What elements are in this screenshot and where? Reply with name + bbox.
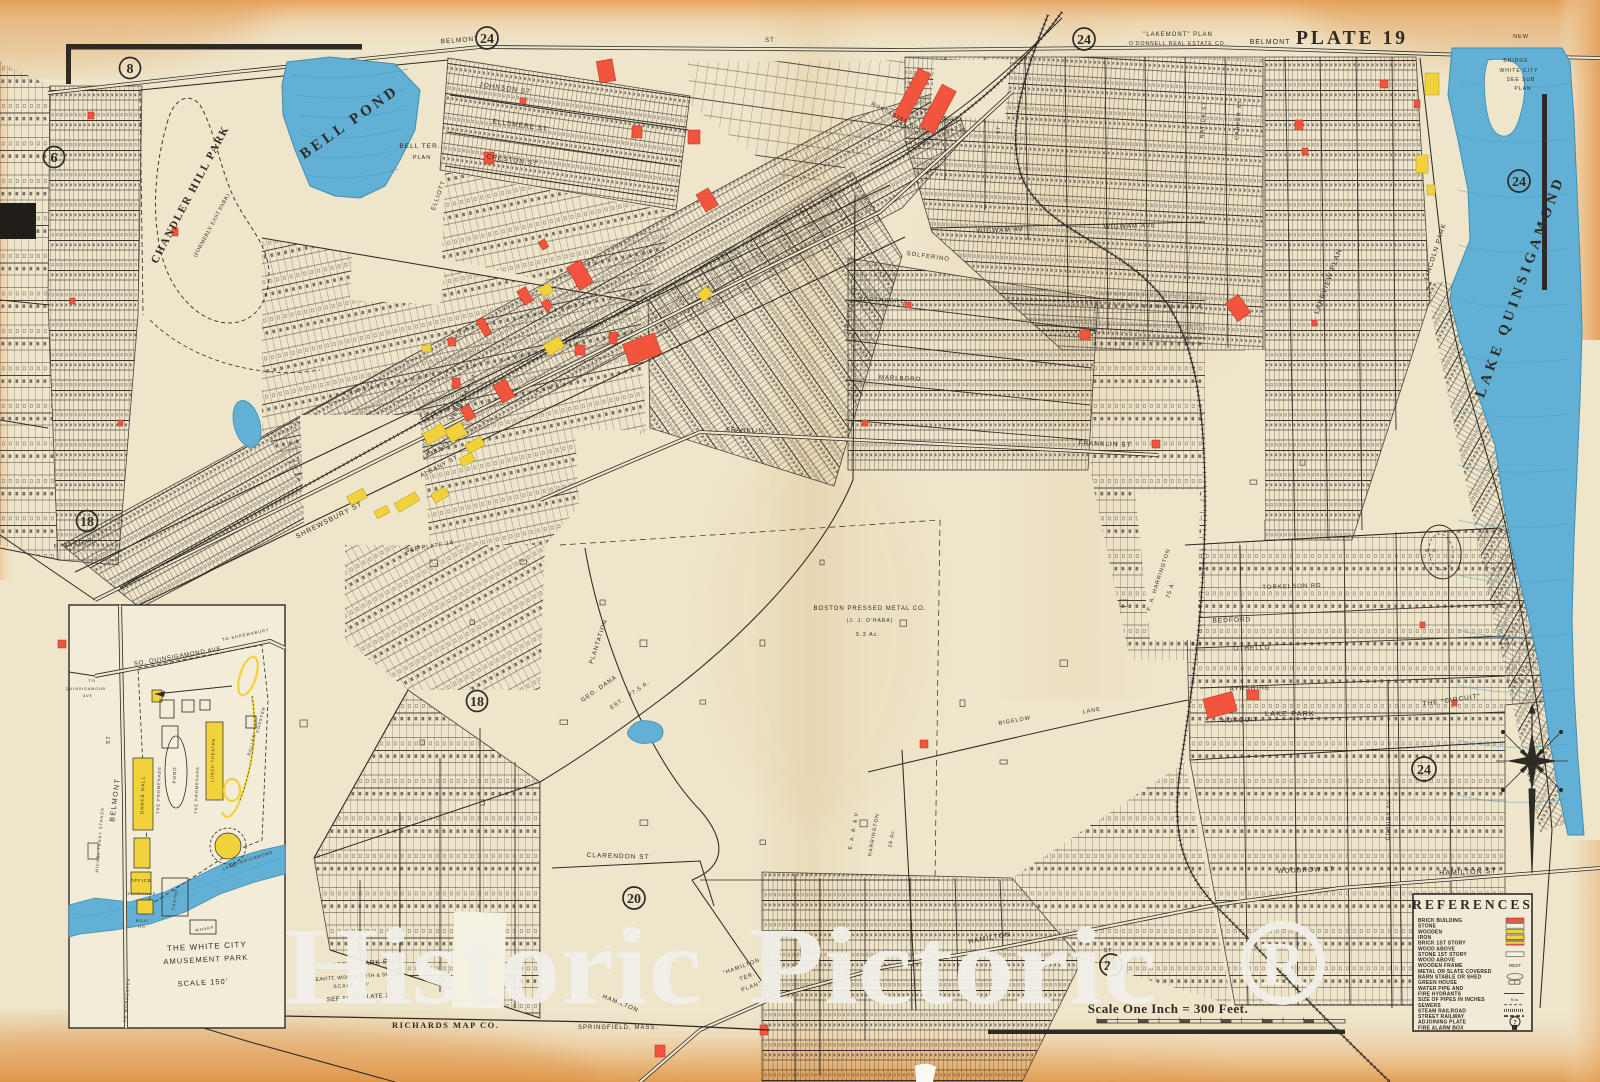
svg-text:NEW: NEW xyxy=(1513,34,1529,40)
svg-text:BEDFORD: BEDFORD xyxy=(1212,616,1251,624)
svg-text:Historic: Historic xyxy=(284,905,702,1027)
svg-text:ST: ST xyxy=(105,735,112,745)
svg-text:Pictoric: Pictoric xyxy=(749,905,1157,1027)
svg-text:ENTRANCE: ENTRANCE xyxy=(128,892,157,896)
svg-text:O’DONNELL REAL ESTATE CO.: O’DONNELL REAL ESTATE CO. xyxy=(1129,41,1227,47)
svg-text:W.O.: W.O. xyxy=(1425,548,1439,553)
svg-text:LAKE PARK: LAKE PARK xyxy=(1265,709,1315,718)
svg-text:BELMONT: BELMONT xyxy=(1250,39,1291,46)
svg-text:6 in.: 6 in. xyxy=(1511,997,1519,1002)
svg-text:PLATE 19: PLATE 19 xyxy=(1296,28,1408,49)
svg-text:REST: REST xyxy=(1509,963,1521,968)
svg-text:SEE SUB: SEE SUB xyxy=(1507,77,1536,83)
svg-text:PLAN: PLAN xyxy=(1514,86,1531,92)
svg-text:18: 18 xyxy=(470,695,484,710)
svg-text:OFFICE: OFFICE xyxy=(130,878,151,883)
svg-text:HO.: HO. xyxy=(138,925,148,929)
svg-text:QUINSIGAMOND: QUINSIGAMOND xyxy=(66,687,107,691)
svg-text:24: 24 xyxy=(1512,175,1526,190)
svg-text:24: 24 xyxy=(1417,763,1431,778)
svg-text:REFERENCES: REFERENCES xyxy=(1412,897,1533,912)
svg-text:BELL TER.: BELL TER. xyxy=(399,143,440,150)
svg-text:BRIDGE: BRIDGE xyxy=(1503,58,1528,64)
svg-text:OTHELLO: OTHELLO xyxy=(1233,644,1271,652)
svg-text:"LAKEMONT" PLAN: "LAKEMONT" PLAN xyxy=(1143,32,1213,38)
svg-text:ST: ST xyxy=(961,125,968,134)
svg-text:24: 24 xyxy=(480,32,494,47)
svg-text:R: R xyxy=(1261,931,1307,999)
svg-text:POND: POND xyxy=(172,766,178,783)
svg-text:BOAT: BOAT xyxy=(136,919,150,923)
svg-text:ST: ST xyxy=(765,38,775,44)
svg-text:BOSTON PRESSED METAL CO.: BOSTON PRESSED METAL CO. xyxy=(814,606,927,612)
svg-text:24: 24 xyxy=(1077,33,1091,48)
svg-text:8: 8 xyxy=(127,62,134,77)
svg-text:NONQUIT: NONQUIT xyxy=(1221,716,1258,724)
svg-text:AYRSHIRE: AYRSHIRE xyxy=(1229,684,1270,692)
svg-text:5.3 Ac.: 5.3 Ac. xyxy=(856,632,880,638)
svg-text:6: 6 xyxy=(51,151,58,166)
svg-text:WHITE CITY: WHITE CITY xyxy=(1500,68,1539,74)
svg-text:ST: ST xyxy=(996,125,1003,134)
svg-text:FIRE ALARM BOX: FIRE ALARM BOX xyxy=(1418,1025,1464,1031)
svg-text:PLAN: PLAN xyxy=(413,155,431,161)
svg-text:AVE: AVE xyxy=(83,694,93,698)
svg-text:18: 18 xyxy=(80,515,94,530)
svg-text:TO: TO xyxy=(88,678,95,683)
svg-text:(J. J. O’HARA): (J. J. O’HARA) xyxy=(847,618,894,624)
